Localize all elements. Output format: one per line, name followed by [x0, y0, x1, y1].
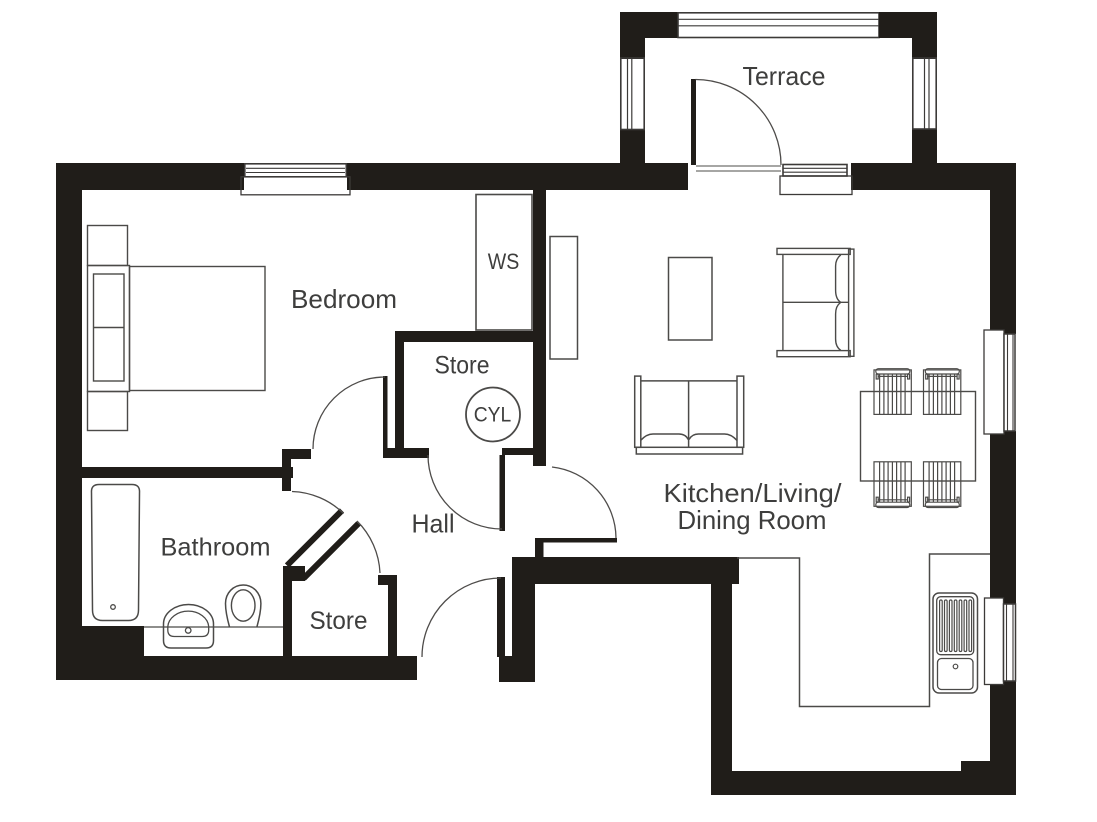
svg-text:Terrace: Terrace: [743, 61, 826, 91]
svg-text:Dining Room: Dining Room: [678, 505, 827, 535]
svg-text:Hall: Hall: [412, 509, 455, 539]
svg-text:WS: WS: [488, 249, 520, 274]
svg-text:Bedroom: Bedroom: [291, 284, 397, 314]
svg-text:Store: Store: [310, 607, 368, 635]
svg-text:Store: Store: [435, 352, 490, 380]
svg-text:CYL: CYL: [474, 404, 512, 427]
svg-text:Kitchen/Living/: Kitchen/Living/: [664, 478, 843, 508]
svg-text:Bathroom: Bathroom: [161, 534, 271, 562]
